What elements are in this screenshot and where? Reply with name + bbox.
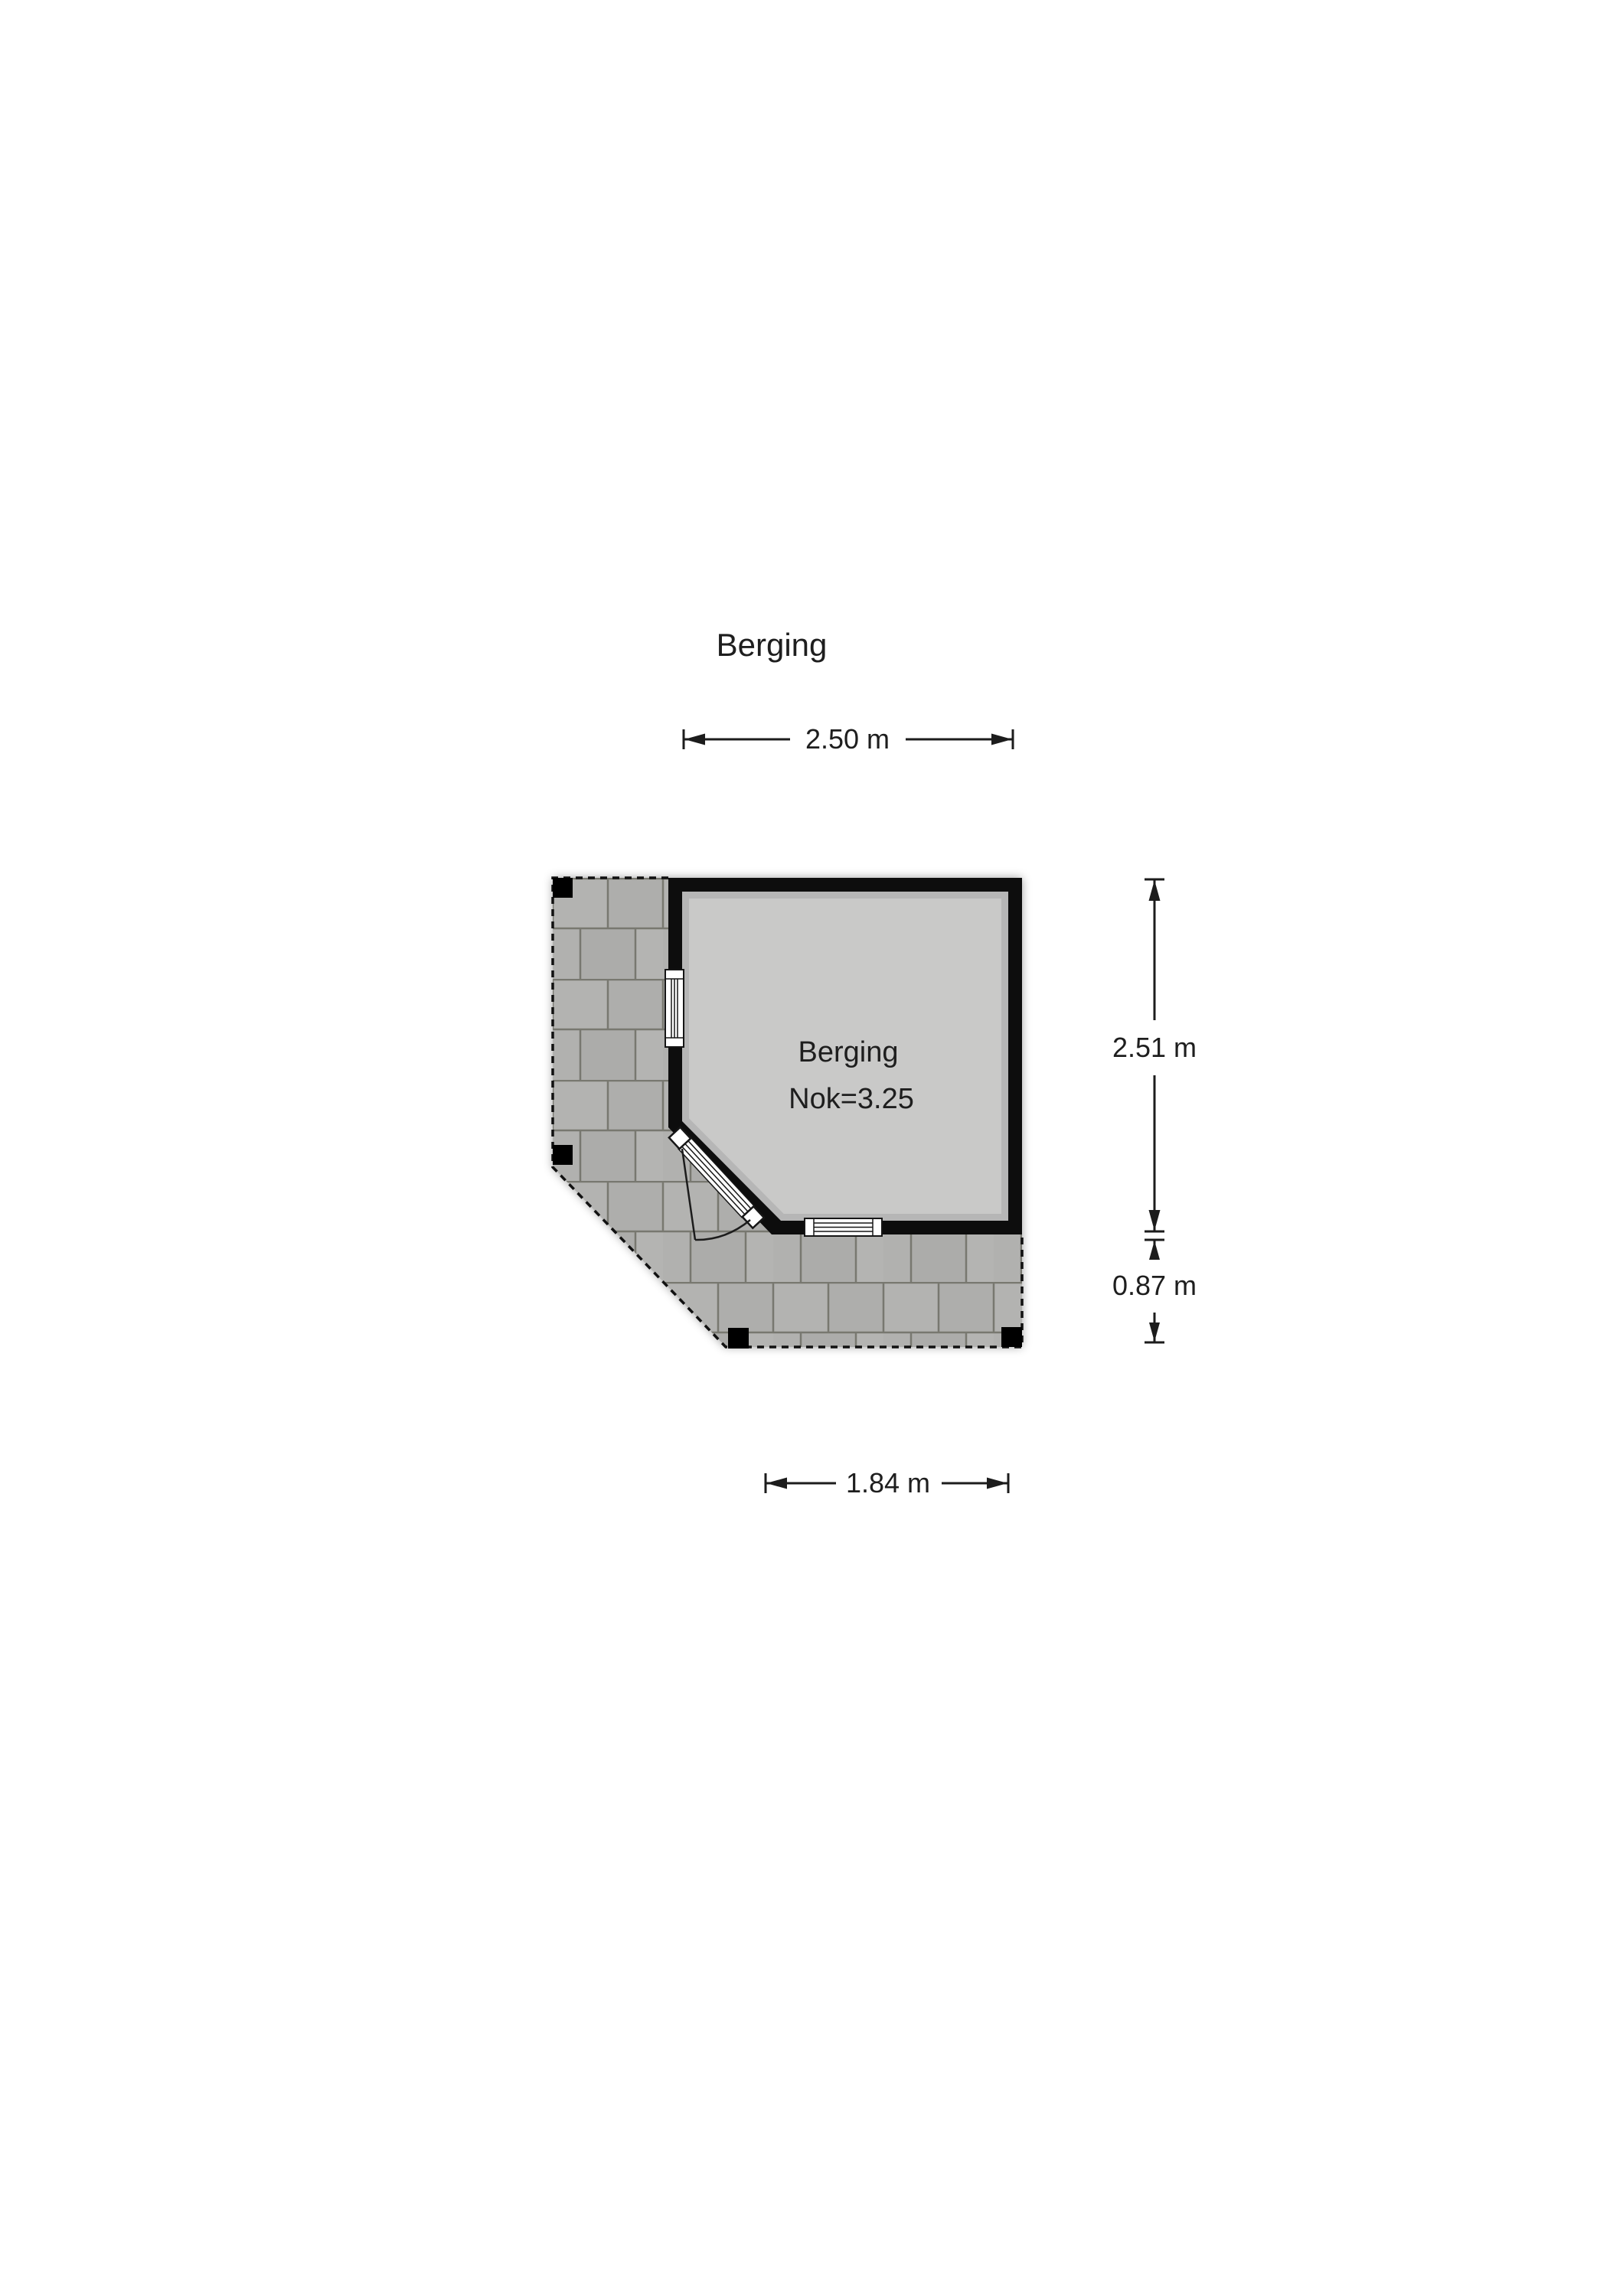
dimension-top-label: 2.50 m: [805, 724, 890, 755]
corner-post-bottom-right: [1001, 1327, 1022, 1347]
floorplan-page: Berging 2.50 m 2.51 m 0.87 m 1.84 m Berg…: [0, 0, 1623, 2296]
room-ridge-label: Nok=3.25: [789, 1084, 914, 1116]
corner-post-top-left: [553, 878, 573, 898]
page-title: Berging: [717, 628, 828, 663]
window-left: [665, 970, 684, 1047]
dimension-right-lower-label: 0.87 m: [1112, 1270, 1197, 1301]
corner-post-left: [553, 1145, 573, 1165]
floorplan-canvas: [0, 0, 1623, 2296]
room-label: Berging: [798, 1037, 899, 1069]
window-bottom: [805, 1218, 882, 1236]
corner-post-bottom: [728, 1328, 749, 1349]
dimension-bottom-label: 1.84 m: [846, 1468, 930, 1499]
dimension-right-upper-label: 2.51 m: [1112, 1032, 1197, 1063]
